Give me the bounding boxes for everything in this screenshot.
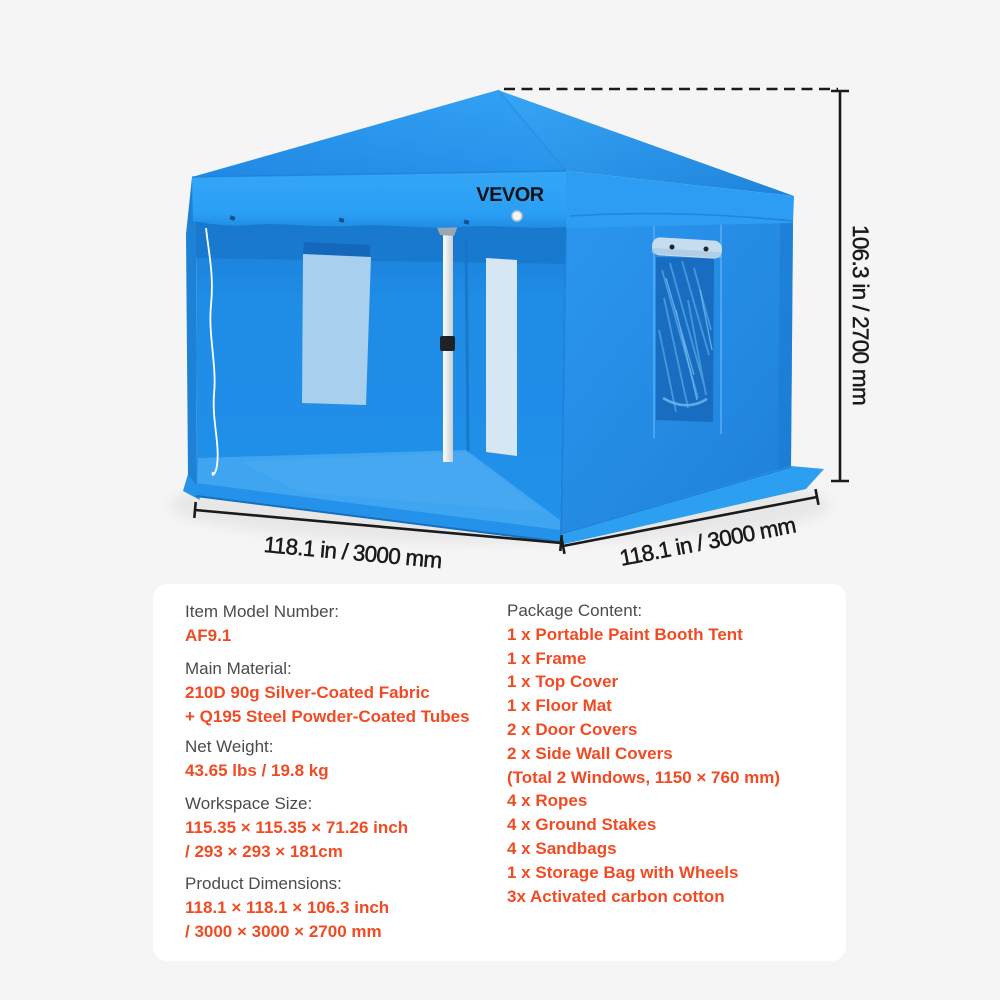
svg-text:106.3 in / 2700 mm: 106.3 in / 2700 mm: [848, 225, 873, 405]
svg-text:VEVOR: VEVOR: [476, 184, 545, 206]
